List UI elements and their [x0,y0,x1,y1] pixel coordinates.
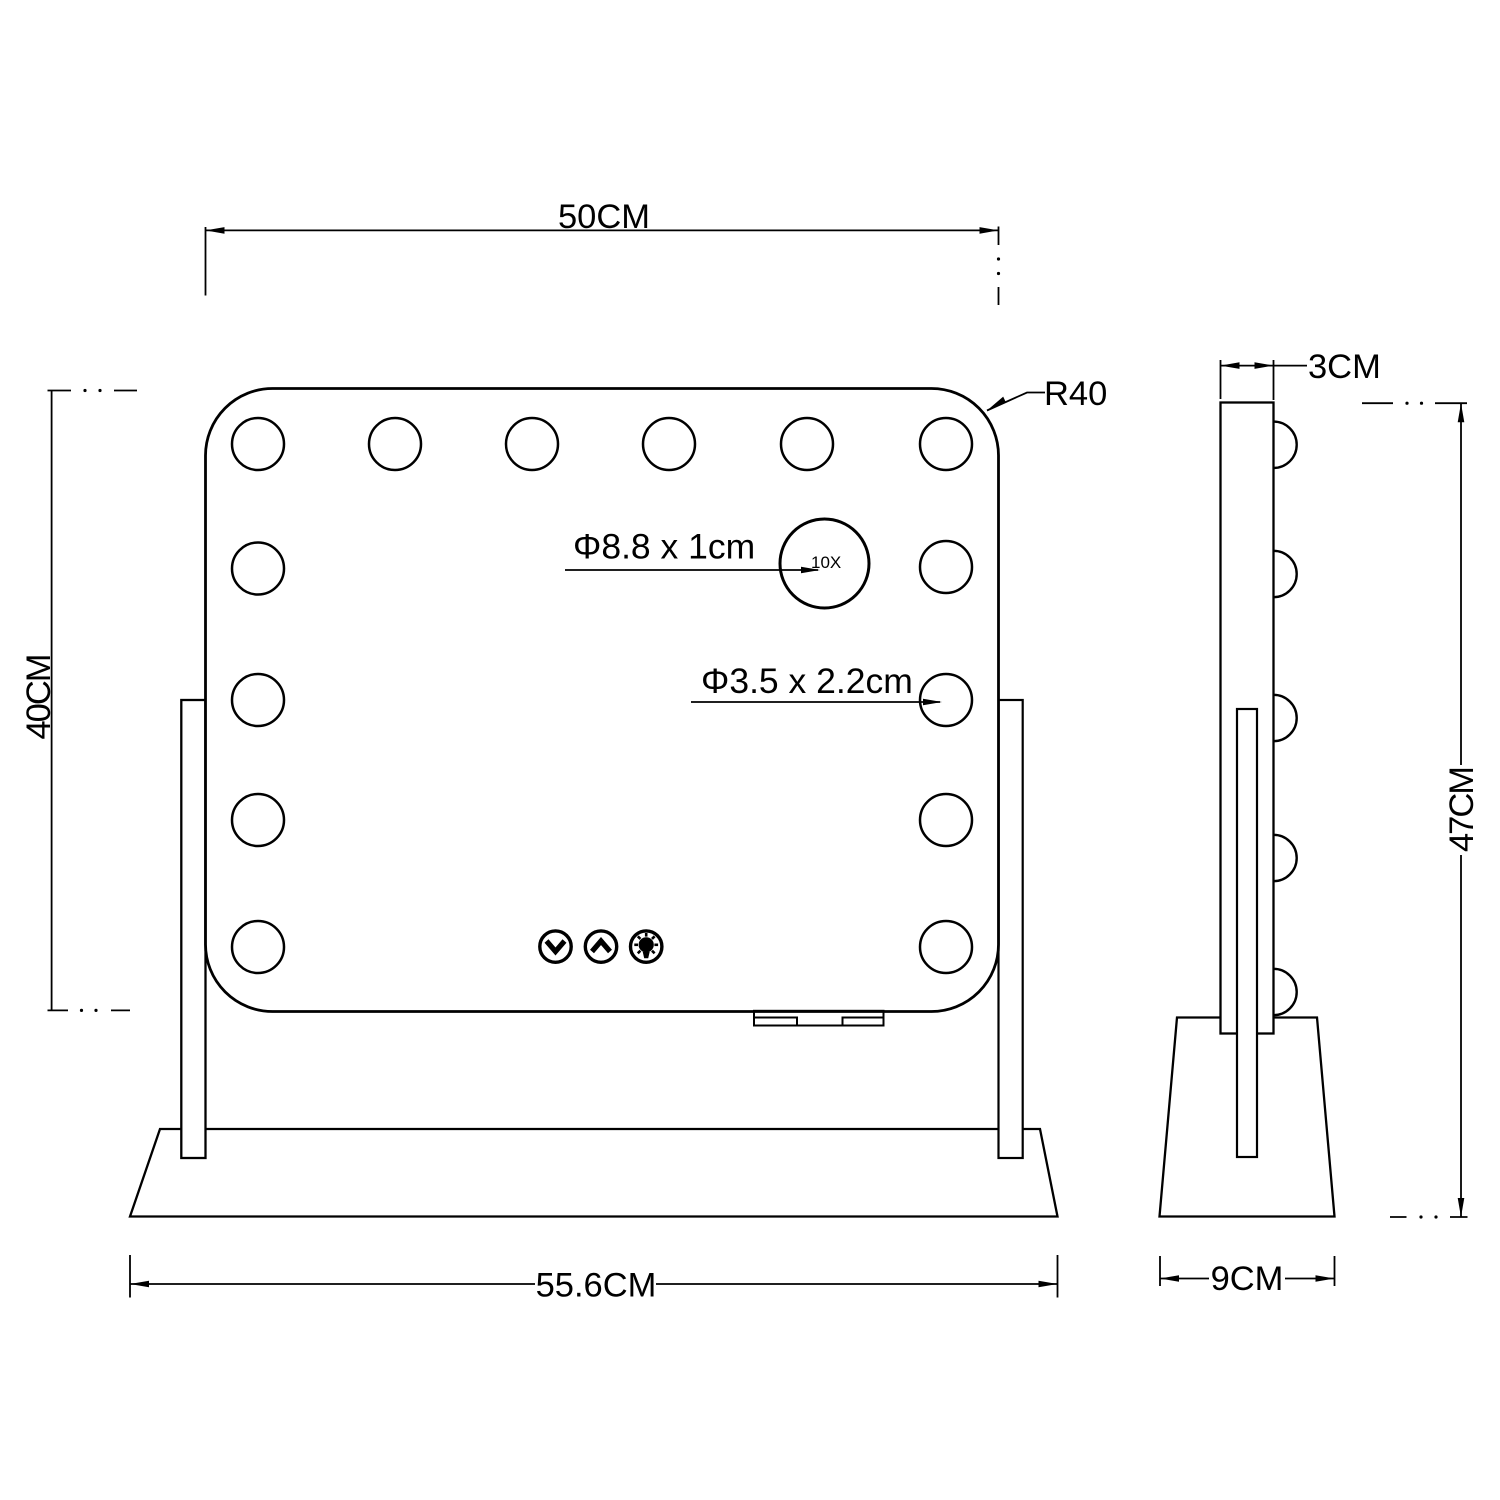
svg-text:9CM: 9CM [1211,1260,1284,1298]
svg-text:R40: R40 [1044,375,1107,413]
svg-text:3CM: 3CM [1308,348,1381,386]
svg-text:47CM: 47CM [1443,768,1481,852]
svg-text:Φ8.8 x 1cm: Φ8.8 x 1cm [573,527,755,567]
svg-text:55.6CM: 55.6CM [536,1267,657,1305]
svg-text:Φ3.5 x 2.2cm: Φ3.5 x 2.2cm [701,661,913,701]
